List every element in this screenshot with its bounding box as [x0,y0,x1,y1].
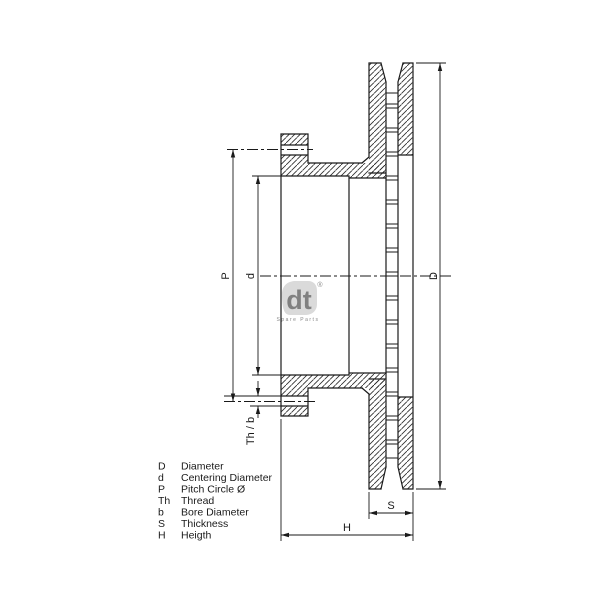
legend-label: Thread [181,495,214,507]
legend-label: Centering Diameter [181,472,273,484]
legend-symbol: S [158,518,165,530]
legend: D Diameter d Centering Diameter P Pitch … [158,461,273,542]
Thb-arrow-lower [256,406,260,414]
vent-vane-rungs [386,93,398,458]
legend-symbol: d [158,472,164,484]
H-arrow-left [281,533,289,537]
legend-symbol: P [158,484,165,496]
legend-symbol: b [158,507,164,519]
legend-symbol: D [158,461,166,473]
d-arrow-top [256,176,260,184]
legend-symbol: H [158,530,166,542]
disc-top-outer-plate-section [398,63,413,155]
D-arrow-top [438,63,442,71]
brake-disc-technical-drawing: P d Th / b D S H dt ® Spare Parts D Diam… [0,0,600,600]
legend-row: D Diameter [158,461,224,473]
legend-label: Heigth [181,530,212,542]
legend-row: S Thickness [158,518,228,530]
legend-row: d Centering Diameter [158,472,273,484]
disc-top-inner-plate-section [369,63,386,173]
S-arrow-left [369,511,377,515]
P-arrow-bottom [231,394,235,402]
legend-symbol: Th [158,495,170,507]
logo-wordmark: Spare Parts [277,317,320,323]
S-arrow-right [405,511,413,515]
Thb-arrow-upper [256,388,260,396]
dim-label-P: P [220,272,232,279]
bottom-bolt-bore [281,396,308,406]
legend-label: Thickness [181,518,228,530]
disc-bottom-inner-plate-section [369,379,386,489]
dim-label-H: H [343,522,351,534]
legend-row: Th Thread [158,495,214,507]
legend-row: H Heigth [158,530,212,542]
dim-label-S: S [387,500,394,512]
logo-monogram: dt [286,285,311,315]
legend-label: Bore Diameter [181,507,249,519]
dim-label-D: D [428,272,440,280]
page: P d Th / b D S H dt ® Spare Parts D Diam… [0,0,600,600]
registered-mark-icon: ® [317,281,323,289]
legend-row: P Pitch Circle Ø [158,484,245,496]
dim-label-Th-b: Th / b [245,417,257,445]
P-arrow-top [231,150,235,158]
d-arrow-bottom [256,367,260,375]
top-flange-plate-section [281,163,349,176]
dim-label-d: d [245,273,257,279]
dt-logo-watermark: dt ® Spare Parts [277,281,324,323]
bottom-flange-plate-section [281,375,349,388]
D-arrow-bottom [438,481,442,489]
legend-label: Pitch Circle Ø [181,484,245,496]
legend-row: b Bore Diameter [158,507,249,519]
H-arrow-right [405,533,413,537]
top-bolt-bore [281,145,308,155]
legend-label: Diameter [181,461,224,473]
